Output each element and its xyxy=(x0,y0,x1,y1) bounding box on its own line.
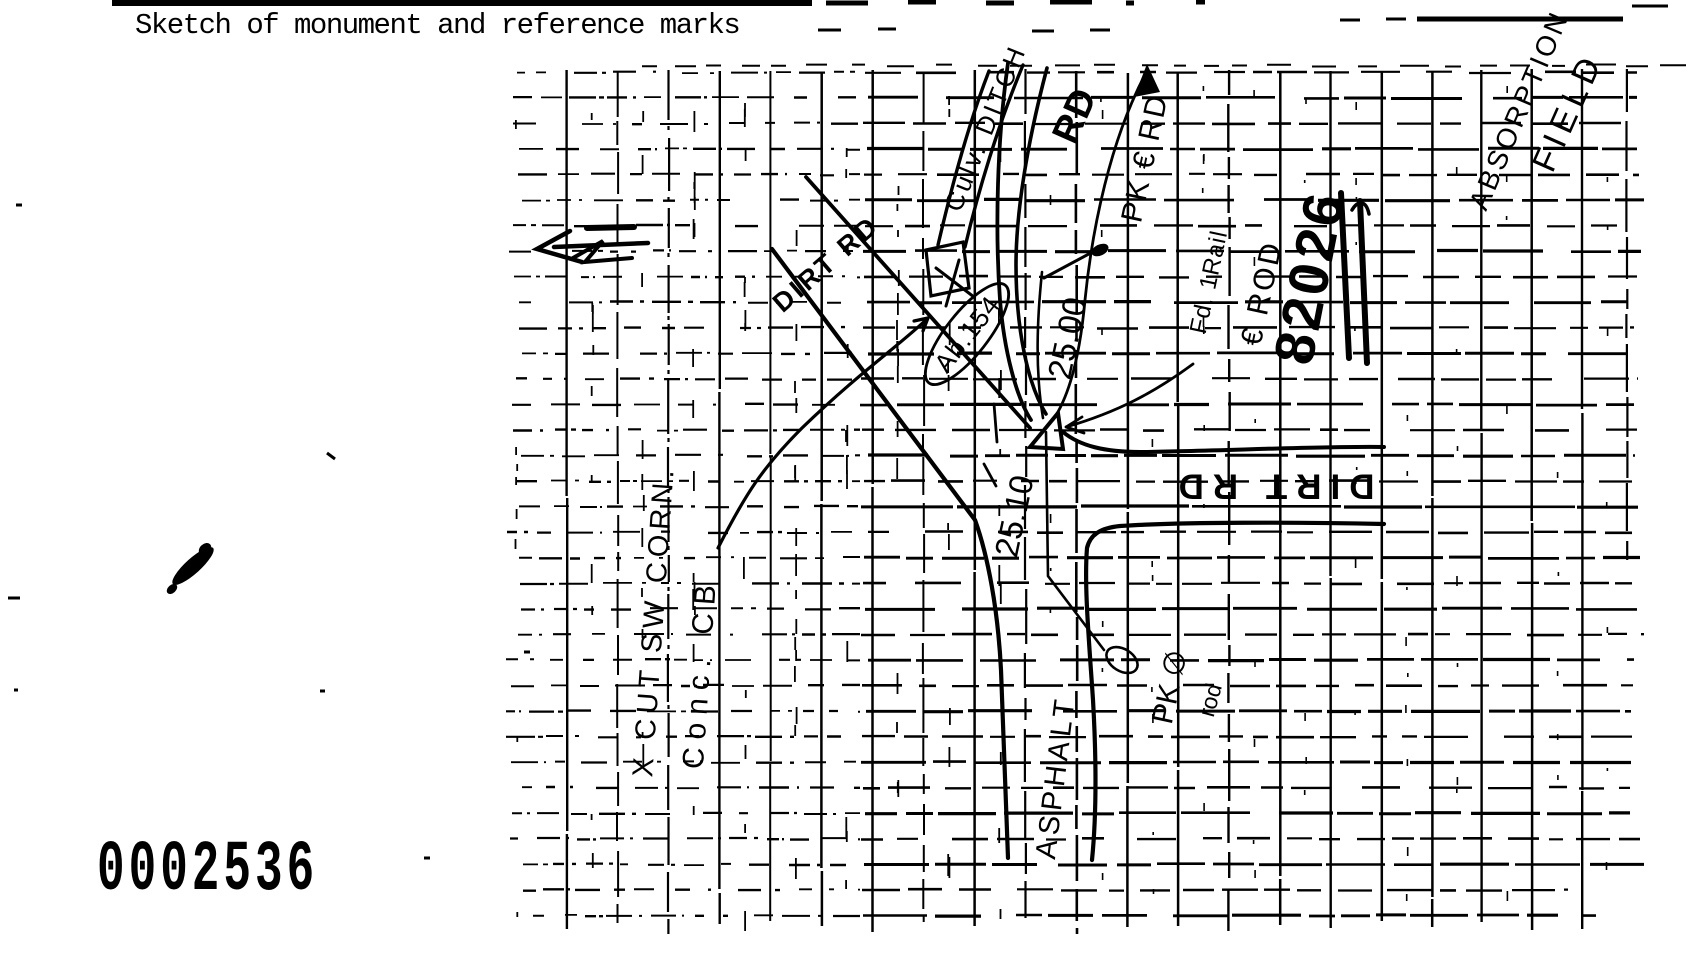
svg-text:DIRT RD: DIRT RD xyxy=(1170,467,1375,506)
svg-text:0002536: 0002536 xyxy=(97,831,318,912)
svg-text:Sketch of monument and referen: Sketch of monument and reference marks xyxy=(135,9,739,42)
